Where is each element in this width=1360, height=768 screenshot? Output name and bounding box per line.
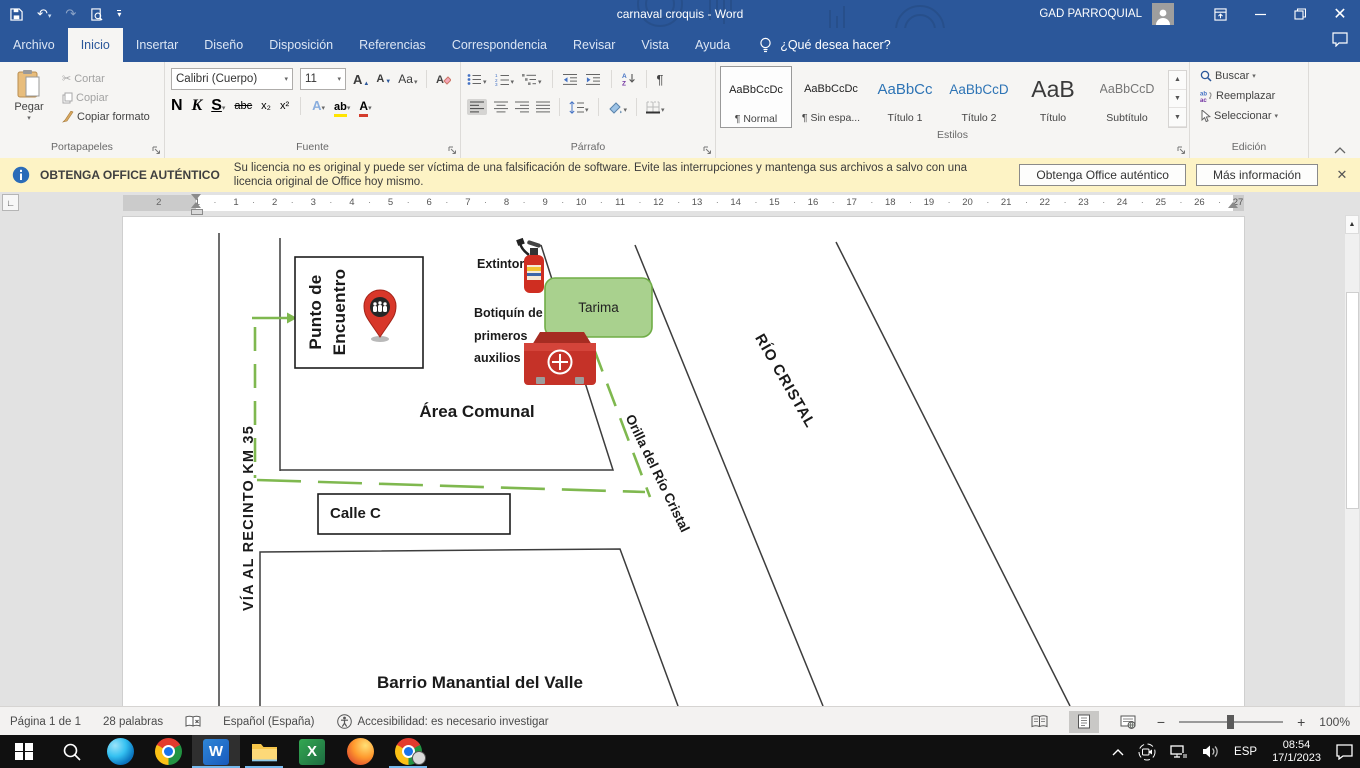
justify-button[interactable] [536, 101, 550, 113]
taskbar-chrome[interactable] [144, 735, 192, 768]
subscript-button[interactable]: x₂ [261, 100, 271, 112]
word-icon: W [203, 739, 229, 765]
network-icon [1170, 744, 1188, 760]
borders-icon [646, 101, 660, 114]
accessibility-icon [337, 714, 352, 729]
styles-scroll-down[interactable]: ▼ [1169, 90, 1186, 109]
tab-correspondencia[interactable]: Correspondencia [439, 28, 560, 62]
print-layout-icon [1077, 714, 1091, 729]
chrome-icon [155, 738, 182, 765]
increase-indent-icon [586, 73, 601, 86]
taskbar-chrome-profile[interactable] [384, 735, 432, 768]
info-icon [12, 166, 30, 184]
taskbar-edge[interactable] [96, 735, 144, 768]
ribbon-tabs: Archivo Inicio Insertar Diseño Disposici… [0, 28, 1360, 62]
italic-button[interactable]: K [192, 97, 203, 115]
extintor-label[interactable]: Extintor [477, 257, 524, 271]
select-button[interactable]: Seleccionar▾ [1196, 108, 1302, 124]
underline-button[interactable]: S▾ [211, 97, 225, 115]
shading-button[interactable]: ▾ [608, 101, 628, 114]
tray-show-hidden-icons[interactable] [1105, 735, 1131, 768]
firefox-icon [347, 738, 374, 765]
word-count[interactable]: 28 palabras [103, 716, 163, 728]
tray-language[interactable]: ESP [1227, 735, 1264, 768]
format-painter-icon [62, 111, 74, 123]
start-button[interactable] [0, 735, 48, 768]
tab-archivo[interactable]: Archivo [0, 28, 68, 62]
group-font: Calibri (Cuerpo)▾ 11▾ A▲ A▼ Aa▾ A N K S▾… [165, 62, 461, 158]
align-right-button[interactable] [515, 101, 529, 113]
ribbon: Pegar ▾ ✂Cortar Copiar Copiar formato Po… [0, 62, 1360, 159]
save-button[interactable] [10, 8, 23, 21]
document-canvas[interactable]: Punto de Encuentro Extintor Tarima Botiq… [0, 215, 1360, 706]
style-heading2[interactable]: AaBbCcD Título 2 [944, 66, 1014, 126]
via-recinto-label[interactable]: VÍA AL RECINTO KM 35 [241, 403, 259, 633]
tab-vista[interactable]: Vista [628, 28, 682, 62]
tab-ayuda[interactable]: Ayuda [682, 28, 743, 62]
croquis-drawing [0, 215, 1360, 706]
style-title[interactable]: AaB Título [1018, 66, 1088, 126]
group-label-styles: Estilos [716, 128, 1189, 146]
area-comunal-label[interactable]: Área Comunal [397, 402, 557, 422]
clipboard-icon [16, 69, 42, 99]
line-spacing-icon [569, 101, 584, 114]
right-indent-marker[interactable] [1228, 202, 1238, 208]
title-bar: ↶▾ ↷ ▾ carnaval croquis - Word GAD PARRO… [0, 0, 1360, 28]
font-color-button[interactable]: A▾ [359, 97, 371, 115]
clear-formatting-button[interactable]: A [436, 72, 451, 86]
svg-text:A: A [436, 74, 444, 86]
taskbar-search-button[interactable] [48, 735, 96, 768]
copy-icon [62, 92, 73, 104]
excel-icon: X [299, 739, 325, 765]
bullets-button[interactable]: ▾ [467, 73, 487, 86]
proofing-status[interactable] [185, 715, 201, 729]
get-genuine-office-button[interactable]: Obtenga Office auténtico [1019, 164, 1186, 186]
multilevel-list-icon [522, 73, 537, 86]
read-mode-icon [1031, 715, 1048, 728]
first-aid-label[interactable]: Botiquín de primeros auxilios [474, 302, 543, 370]
scrollbar-thumb[interactable] [1346, 292, 1359, 509]
license-warning-bar: OBTENGA OFFICE AUTÉNTICO Su licencia no … [0, 158, 1360, 193]
align-left-icon [470, 101, 484, 113]
replace-button[interactable]: abac Reemplazar [1196, 88, 1302, 104]
paint-bucket-icon [608, 101, 623, 114]
line-spacing-button[interactable]: ▾ [569, 101, 589, 114]
justify-icon [536, 101, 550, 113]
print-preview-button[interactable] [90, 8, 103, 21]
copy-button[interactable]: Copiar [58, 90, 154, 106]
eraser-icon: A [436, 72, 451, 86]
scissors-icon: ✂ [62, 72, 71, 85]
tray-network[interactable] [1163, 735, 1195, 768]
meeting-point-label[interactable]: Punto de Encuentro [304, 252, 356, 372]
paste-button[interactable]: Pegar ▾ [6, 67, 52, 140]
restore-button[interactable] [1280, 0, 1320, 28]
avatar[interactable] [1152, 3, 1174, 25]
tarima-label[interactable]: Tarima [545, 278, 652, 337]
chrome-profile-badge [412, 751, 426, 765]
group-label-font: Fuente [165, 140, 460, 158]
numbered-list-icon: 123 [495, 73, 510, 86]
svg-text:A: A [622, 73, 627, 80]
search-icon [62, 742, 82, 762]
group-label-clipboard: Portapapeles [0, 140, 164, 158]
print-layout-button[interactable] [1069, 711, 1099, 733]
tab-revisar[interactable]: Revisar [560, 28, 628, 62]
close-button[interactable]: ✕ [1320, 0, 1360, 28]
tray-clock[interactable]: 08:54 17/1/2023 [1264, 739, 1329, 765]
first-line-indent-marker[interactable] [191, 194, 201, 200]
quick-access-toolbar: ↶▾ ↷ ▾ [10, 0, 121, 28]
zoom-slider-thumb[interactable] [1227, 715, 1234, 729]
styles-scroll-up[interactable]: ▲ [1169, 71, 1186, 90]
status-bar: Página 1 de 1 28 palabras Español (Españ… [0, 706, 1360, 736]
group-paragraph: ▾ 123▾ ▾ AZ ¶ [461, 62, 716, 158]
svg-text:ab: ab [1200, 92, 1207, 98]
tab-selector[interactable]: ∟ [2, 194, 19, 211]
tab-inicio[interactable]: Inicio [68, 28, 123, 62]
warning-close-icon[interactable]: ✕ [1328, 167, 1356, 183]
clipboard-dialog-launcher[interactable] [152, 146, 161, 155]
action-center-button[interactable] [1329, 735, 1360, 768]
styles-dialog-launcher[interactable] [1177, 146, 1186, 155]
speaker-icon [1202, 744, 1220, 759]
horizontal-ruler[interactable]: 21 1234567891011121314151617181920212223… [123, 195, 1244, 211]
group-label-paragraph: Párrafo [461, 140, 715, 158]
word-window: ↶▾ ↷ ▾ carnaval croquis - Word GAD PARRO… [0, 0, 1360, 768]
show-marks-button[interactable]: ¶ [657, 72, 664, 87]
font-size-combo[interactable]: 11▾ [300, 68, 346, 90]
strikethrough-button[interactable]: abc [234, 100, 252, 112]
style-no-spacing[interactable]: AaBbCcDc ¶ Sin espa... [796, 66, 866, 126]
web-layout-button[interactable] [1113, 711, 1143, 733]
decrease-indent-button[interactable] [563, 73, 578, 86]
style-subtitle[interactable]: AaBbCcD Subtítulo [1092, 66, 1162, 126]
group-label-editing: Edición [1190, 140, 1308, 158]
change-case-button[interactable]: Aa▾ [398, 72, 417, 86]
taskbar-excel[interactable]: X [288, 735, 336, 768]
grow-font-button[interactable]: A▲ [353, 72, 369, 87]
ribbon-display-options-button[interactable] [1200, 0, 1240, 28]
ruler-row: ∟ 21 12345678910111213141516171819202122… [0, 192, 1360, 215]
read-mode-button[interactable] [1025, 711, 1055, 733]
style-normal[interactable]: AaBbCcDc ¶ Normal [720, 66, 792, 128]
format-painter-button[interactable]: Copiar formato [58, 109, 154, 125]
group-clipboard: Pegar ▾ ✂Cortar Copiar Copiar formato Po… [0, 62, 165, 158]
align-center-icon [494, 101, 508, 113]
tab-diseno[interactable]: Diseño [191, 28, 256, 62]
hanging-indent-marker[interactable] [191, 202, 201, 208]
vertical-scrollbar[interactable]: ▲ [1345, 215, 1359, 706]
taskbar-firefox[interactable] [336, 735, 384, 768]
lightbulb-icon [759, 37, 772, 53]
text-effects-button[interactable]: A▾ [312, 97, 325, 115]
increase-indent-button[interactable] [586, 73, 601, 86]
paragraph-dialog-launcher[interactable] [703, 146, 712, 155]
scroll-up-icon[interactable]: ▲ [1345, 215, 1359, 234]
replace-icon: abac [1200, 90, 1213, 102]
tray-volume[interactable] [1195, 735, 1227, 768]
group-editing: Buscar▾ abac Reemplazar Seleccionar▾ Edi… [1190, 62, 1309, 158]
align-center-button[interactable] [494, 101, 508, 113]
group-styles: AaBbCcDc ¶ Normal AaBbCcDc ¶ Sin espa...… [716, 62, 1190, 158]
language-status[interactable]: Español (España) [223, 716, 314, 728]
paste-dropdown[interactable]: ▾ [27, 115, 31, 122]
taskbar-word[interactable]: W [192, 735, 240, 768]
warning-message: Su licencia no es original y puede ser v… [234, 161, 1020, 189]
sort-icon: AZ [622, 72, 636, 86]
shrink-font-button[interactable]: A▼ [376, 73, 391, 85]
more-info-button[interactable]: Más información [1196, 164, 1318, 186]
tray-meet-now[interactable] [1131, 735, 1163, 768]
borders-button[interactable]: ▾ [646, 101, 665, 114]
action-center-icon [1336, 744, 1353, 760]
redo-button[interactable]: ↷ [65, 6, 76, 22]
taskbar: W X ESP 08:54 [0, 735, 1360, 768]
barrio-label[interactable]: Barrio Manantial del Valle [350, 673, 610, 693]
tab-disposicion[interactable]: Disposición [256, 28, 346, 62]
find-button[interactable]: Buscar▾ [1196, 68, 1302, 84]
numbering-button[interactable]: 123▾ [495, 73, 515, 86]
collapse-ribbon-button[interactable] [1334, 147, 1346, 154]
web-layout-icon [1120, 715, 1136, 729]
proofing-book-icon [185, 715, 201, 729]
calle-c-label[interactable]: Calle C [330, 494, 381, 534]
align-left-button[interactable] [467, 99, 487, 115]
decrease-indent-icon [563, 73, 578, 86]
accessibility-status[interactable]: Accesibilidad: es necesario investigar [337, 714, 549, 729]
minimize-button[interactable] [1240, 0, 1280, 28]
bullet-list-icon [467, 73, 482, 86]
style-heading1[interactable]: AaBbCc Título 1 [870, 66, 940, 126]
superscript-button[interactable]: x² [280, 100, 289, 112]
bold-button[interactable]: N [171, 97, 183, 115]
multilevel-list-button[interactable]: ▾ [522, 73, 542, 86]
file-explorer-icon [251, 741, 278, 763]
svg-text:3: 3 [495, 82, 498, 86]
zoom-in-button[interactable]: + [1297, 714, 1305, 730]
camera-icon [1138, 743, 1156, 761]
styles-gallery-more[interactable]: ▼ [1169, 108, 1186, 127]
taskbar-file-explorer[interactable] [240, 735, 288, 768]
page-indicator[interactable]: Página 1 de 1 [10, 716, 81, 728]
cut-button[interactable]: ✂Cortar [58, 70, 154, 87]
svg-text:Z: Z [622, 81, 626, 87]
tab-referencias[interactable]: Referencias [346, 28, 439, 62]
font-name-combo[interactable]: Calibri (Cuerpo)▾ [171, 68, 293, 90]
font-dialog-launcher[interactable] [448, 146, 457, 155]
zoom-level[interactable]: 100% [1319, 715, 1350, 729]
tell-me-box[interactable]: ¿Qué desea hacer? [759, 28, 891, 62]
zoom-slider[interactable] [1179, 721, 1283, 723]
zoom-out-button[interactable]: − [1157, 714, 1165, 730]
account-name[interactable]: GAD PARROQUIAL [1039, 8, 1142, 20]
windows-logo-icon [15, 743, 33, 761]
tab-insertar[interactable]: Insertar [123, 28, 191, 62]
search-icon [1200, 70, 1212, 82]
qat-customize-button[interactable]: ▾ [117, 10, 121, 19]
edge-icon [107, 738, 134, 765]
svg-text:ac: ac [1200, 98, 1207, 102]
warning-title: OBTENGA OFFICE AUTÉNTICO [40, 168, 220, 182]
chevron-up-icon [1112, 748, 1124, 756]
cursor-arrow-icon [1200, 110, 1211, 122]
undo-button[interactable]: ↶▾ [37, 6, 51, 22]
feedback-icon[interactable] [1332, 32, 1348, 47]
sort-button[interactable]: AZ [622, 72, 636, 86]
align-right-icon [515, 101, 529, 113]
river-right-bank [836, 242, 1070, 706]
highlight-button[interactable]: ab▾ [334, 97, 350, 115]
